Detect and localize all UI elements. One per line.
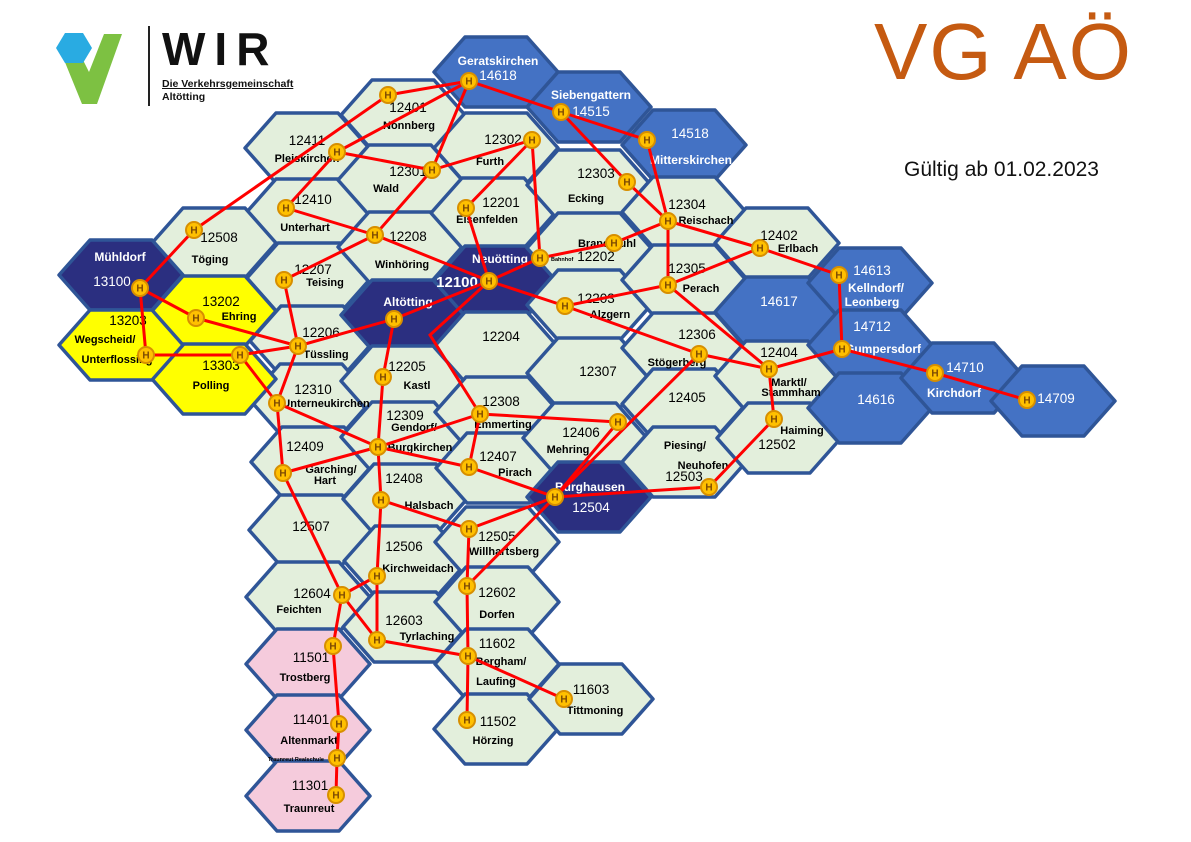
hex-label-12206-0: 12206 bbox=[302, 325, 340, 340]
hex-label-11501-0: 11501 bbox=[293, 650, 330, 665]
logo: WIR Die Verkehrsgemeinschaft Altötting bbox=[52, 26, 293, 110]
bus-stop-letter-23: H bbox=[664, 281, 671, 292]
hex-label-12308-0: 12308 bbox=[482, 394, 520, 409]
hex-label-14613-0: 14613 bbox=[853, 263, 891, 278]
hex-label-12309-1: Gendorf/ bbox=[391, 422, 437, 434]
bus-stop-letter-41: H bbox=[373, 572, 380, 583]
bus-stop-letter-27: H bbox=[931, 369, 938, 380]
hex-label-12402-0: 12402 bbox=[760, 228, 798, 243]
bus-stop-letter-42: H bbox=[338, 591, 345, 602]
hex-label-12407-0: 12407 bbox=[479, 449, 517, 464]
hex-label-11602-0: 11602 bbox=[479, 636, 516, 651]
hex-label-12306-0: 12306 bbox=[678, 327, 716, 342]
bus-stop-letter-44: H bbox=[373, 636, 380, 647]
hex-label-12305-1: Perach bbox=[683, 283, 720, 295]
bus-stop-letter-52: H bbox=[462, 204, 469, 215]
hex-label-12206-1: Tüssling bbox=[303, 349, 348, 361]
hex-label-14617-0: 14617 bbox=[760, 294, 798, 309]
hex-label-13100-0: Mühldorf bbox=[94, 250, 146, 264]
hex-label-12407-1: Pirach bbox=[498, 467, 532, 479]
hex-label-12406-0: 12406 bbox=[562, 425, 600, 440]
hex-label-13100-1: 13100 bbox=[93, 274, 131, 289]
page-title: VG AÖ bbox=[874, 6, 1133, 98]
hex-label-12409-0: 12409 bbox=[286, 439, 324, 454]
hex-label-11501-1: Trostberg bbox=[280, 672, 331, 684]
hex-label-12303-0: 12303 bbox=[577, 166, 615, 181]
stop-annotation-1: Traunreut Realschule bbox=[268, 757, 324, 763]
bus-stop-letter-16: H bbox=[390, 315, 397, 326]
bus-stop-letter-34: H bbox=[614, 418, 621, 429]
hex-label-12602-0: 12602 bbox=[478, 585, 516, 600]
hex-label-12205-1: Kastl bbox=[404, 380, 431, 392]
hex-label-12310-0: 12310 bbox=[294, 382, 332, 397]
hex-label-12411-0: 12411 bbox=[289, 133, 326, 148]
bus-stop-letter-8: H bbox=[136, 284, 143, 295]
bus-stop-letter-5: H bbox=[428, 166, 435, 177]
brand-name: WIR bbox=[162, 28, 293, 72]
hex-label-11502-1: Hörzing bbox=[473, 735, 514, 747]
hex-label-14515-0: Siebengattern bbox=[551, 88, 631, 102]
bus-stop-letter-47: H bbox=[332, 791, 339, 802]
hex-label-14710-1: Kirchdorf bbox=[927, 386, 982, 400]
hex-label-12408-0: 12408 bbox=[385, 471, 423, 486]
bus-stop-letter-11: H bbox=[236, 351, 243, 362]
hex-label-12301-1: Wald bbox=[373, 183, 399, 195]
wabenplan-map: 12411Pleiskirchen12410Unterhart12207Teis… bbox=[0, 0, 1191, 842]
bus-stop-letter-36: H bbox=[551, 493, 558, 504]
bus-stop-letter-9: H bbox=[192, 314, 199, 325]
hex-label-12502-0: Haiming bbox=[780, 425, 823, 437]
hex-label-12302-1: Furth bbox=[476, 156, 504, 168]
hex-label-13202-0: 13202 bbox=[202, 294, 240, 309]
bus-stop-letter-49: H bbox=[560, 695, 567, 706]
bus-stop-letter-40: H bbox=[377, 496, 384, 507]
hex-label-12603-0: 12603 bbox=[385, 613, 423, 628]
bus-stop-letter-46: H bbox=[333, 754, 340, 765]
bus-stop-letter-53: H bbox=[528, 136, 535, 147]
hex-label-12405-0: 12405 bbox=[668, 390, 706, 405]
bus-stop-letter-30: H bbox=[695, 350, 702, 361]
bus-stop-letter-0: H bbox=[465, 77, 472, 88]
bus-stop-letter-13: H bbox=[294, 342, 301, 353]
bus-stop-letter-7: H bbox=[190, 226, 197, 237]
hex-label-12404-0: 12404 bbox=[760, 345, 798, 360]
hex-label-12305-0: 12305 bbox=[668, 261, 706, 276]
hex-label-11603-0: 11603 bbox=[573, 682, 610, 697]
hex-label-14618-0: Geratskirchen bbox=[458, 54, 539, 68]
hex-label-11603-1: Tittmoning bbox=[567, 705, 624, 717]
hex-label-12310-1: Unterneukirchen bbox=[282, 398, 370, 410]
hex-label-14616-0: 14616 bbox=[857, 392, 895, 407]
bus-stop-letter-1: H bbox=[557, 108, 564, 119]
bus-stop-letter-28: H bbox=[1023, 396, 1030, 407]
hex-label-12604-0: 12604 bbox=[293, 586, 331, 601]
hex-label-12202-1: 12202 bbox=[577, 249, 615, 264]
hex-11401 bbox=[246, 695, 370, 765]
bus-stop-letter-32: H bbox=[705, 483, 712, 494]
hex-label-14712-0: 14712 bbox=[853, 319, 891, 334]
bus-stop-letter-31: H bbox=[770, 415, 777, 426]
bus-stop-letter-4: H bbox=[333, 148, 340, 159]
hex-label-12203-1: Alzgern bbox=[590, 309, 631, 321]
bus-stop-letter-20: H bbox=[561, 302, 568, 313]
bus-stop-letter-19: H bbox=[610, 239, 617, 250]
hex-label-12303-1: Ecking bbox=[568, 193, 604, 205]
hex-label-11401-1: Altenmarkt bbox=[280, 735, 338, 747]
hex-label-12410-1: Unterhart bbox=[280, 222, 330, 234]
hex-label-14618-1: 14618 bbox=[479, 68, 517, 83]
hex-label-12402-1: Erlbach bbox=[778, 243, 819, 255]
bus-stop-letter-21: H bbox=[623, 178, 630, 189]
bus-stop-letter-33: H bbox=[476, 410, 483, 421]
bus-stop-letter-2: H bbox=[643, 136, 650, 147]
hex-11301 bbox=[246, 761, 370, 831]
bus-stop-letter-18: H bbox=[536, 254, 543, 265]
bus-stop-letter-14: H bbox=[273, 399, 280, 410]
stop-annotation-0: Bahnhof bbox=[551, 257, 573, 263]
hex-label-12504-1: 12504 bbox=[572, 500, 610, 515]
bus-stop-letter-25: H bbox=[835, 271, 842, 282]
bus-stop-letter-3: H bbox=[384, 91, 391, 102]
hex-label-12208-1: Winhöring bbox=[375, 259, 429, 271]
brand-subtitle-1: Die Verkehrsgemeinschaft bbox=[162, 78, 293, 90]
hex-label-11401-0: 11401 bbox=[293, 712, 330, 727]
bus-stop-letter-6: H bbox=[282, 204, 289, 215]
hex-label-11301-0: 11301 bbox=[292, 778, 329, 793]
bus-stop-letter-12: H bbox=[280, 276, 287, 287]
hex-label-12207-1: Teising bbox=[306, 277, 344, 289]
hex-label-12503-0: Piesing/ bbox=[664, 440, 706, 452]
hex-label-12508-1: Töging bbox=[192, 254, 229, 266]
hex-label-12205-0: 12205 bbox=[388, 359, 426, 374]
route-line-63 bbox=[467, 586, 468, 656]
hex-label-12503-2: 12503 bbox=[665, 469, 703, 484]
bus-stop-letter-15: H bbox=[371, 231, 378, 242]
hex-label-13303-1: Polling bbox=[193, 380, 230, 392]
hex-label-12506-0: 12506 bbox=[385, 539, 423, 554]
hex-label-14613-2: Leonberg bbox=[845, 295, 900, 309]
bus-stop-letter-26: H bbox=[838, 345, 845, 356]
bus-stop-letter-17: H bbox=[485, 277, 492, 288]
bus-stop-letter-29: H bbox=[765, 365, 772, 376]
hex-label-12204-0: 12204 bbox=[482, 329, 520, 344]
hex-label-12602-1: Dorfen bbox=[479, 609, 515, 621]
hex-label-12604-1: Feichten bbox=[276, 604, 322, 616]
bus-stop-letter-39: H bbox=[279, 469, 286, 480]
bus-stop-letter-43: H bbox=[329, 642, 336, 653]
bus-stop-letter-35: H bbox=[465, 463, 472, 474]
hex-label-13203-1: Wegscheid/ bbox=[75, 334, 136, 346]
hex-label-12502-1: 12502 bbox=[758, 437, 796, 452]
brand-subtitle-2: Altötting bbox=[162, 91, 293, 103]
hex-label-12201-0: 12201 bbox=[482, 195, 520, 210]
hex-label-14518-1: Mitterskirchen bbox=[650, 153, 732, 167]
hex-label-14518-0: 14518 bbox=[671, 126, 709, 141]
logo-divider bbox=[148, 26, 150, 106]
valid-from-note: Gültig ab 01.02.2023 bbox=[904, 158, 1099, 182]
hex-label-12309-0: 12309 bbox=[386, 408, 424, 423]
bus-stop-letter-37: H bbox=[465, 525, 472, 536]
bus-stop-letter-22: H bbox=[664, 217, 671, 228]
hex-label-12409-2: Hart bbox=[314, 475, 336, 487]
hex-label-14613-1: Kellndorf/ bbox=[848, 281, 905, 295]
bus-stop-letter-54: H bbox=[379, 373, 386, 384]
hex-label-11602-2: Laufing bbox=[476, 676, 516, 688]
hex-label-12506-1: Kirchweidach bbox=[382, 563, 454, 575]
bus-stop-letter-45: H bbox=[335, 720, 342, 731]
bus-stop-letter-48: H bbox=[464, 652, 471, 663]
hex-label-14709-0: 14709 bbox=[1037, 391, 1075, 406]
hex-label-12406-1: Mehring bbox=[547, 444, 590, 456]
hex-label-13202-1: Ehring bbox=[222, 311, 257, 323]
route-line-70 bbox=[467, 656, 468, 720]
hex-label-12603-1: Tyrlaching bbox=[400, 631, 455, 643]
bus-stop-letter-51: H bbox=[463, 582, 470, 593]
hex-label-12307-0: 12307 bbox=[579, 364, 617, 379]
bus-stop-letter-38: H bbox=[374, 443, 381, 454]
wir-logo-icon bbox=[52, 26, 132, 110]
hex-label-12304-0: 12304 bbox=[668, 197, 706, 212]
hex-label-14710-0: 14710 bbox=[946, 360, 984, 375]
bus-stop-letter-10: H bbox=[142, 351, 149, 362]
hex-label-12508-0: 12508 bbox=[200, 230, 238, 245]
bus-stop-letter-24: H bbox=[756, 244, 763, 255]
bus-stop-letter-50: H bbox=[463, 716, 470, 727]
logo-hexagon-icon bbox=[56, 33, 92, 63]
hex-label-11301-1: Traunreut bbox=[284, 803, 335, 815]
hex-label-11502-0: 11502 bbox=[480, 714, 517, 729]
